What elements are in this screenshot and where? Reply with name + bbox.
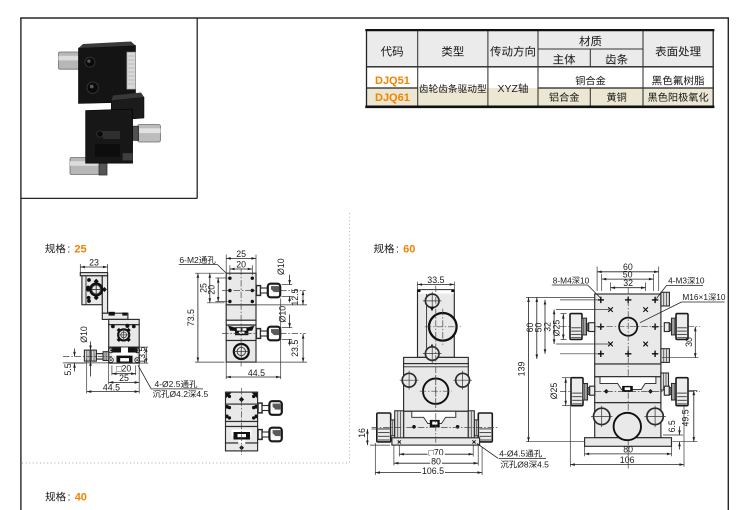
svg-text:33.5: 33.5 (427, 275, 444, 285)
svg-text:30: 30 (684, 337, 694, 347)
svg-text:DJQ51: DJQ51 (375, 75, 410, 87)
svg-text:44.5: 44.5 (248, 368, 265, 378)
svg-text:80: 80 (623, 445, 633, 455)
svg-text:10: 10 (695, 276, 705, 286)
svg-text:4-M3: 4-M3 (668, 276, 687, 286)
svg-text:6.5: 6.5 (667, 420, 677, 432)
svg-text:20: 20 (207, 285, 217, 295)
svg-text:M16×1: M16×1 (682, 292, 708, 302)
svg-text:16: 16 (357, 428, 367, 438)
svg-text:44.5: 44.5 (103, 383, 120, 393)
svg-text::: : (68, 492, 71, 504)
svg-text:Ø8: Ø8 (517, 459, 529, 469)
svg-text:5.5: 5.5 (63, 363, 73, 375)
svg-text:13.5: 13.5 (137, 346, 147, 363)
svg-text:4.5: 4.5 (196, 389, 208, 399)
svg-text:20: 20 (236, 259, 246, 269)
svg-text:32: 32 (623, 278, 633, 288)
svg-text:49.5: 49.5 (681, 409, 691, 426)
svg-text:4.5: 4.5 (537, 459, 549, 469)
svg-text:□20: □20 (116, 364, 131, 374)
svg-text:Ø10: Ø10 (79, 326, 89, 343)
svg-text:XYZ: XYZ (498, 83, 519, 95)
svg-text:25: 25 (119, 373, 129, 383)
svg-text:4-Ø4.5: 4-Ø4.5 (499, 449, 525, 459)
svg-text:Ø10: Ø10 (277, 306, 287, 323)
svg-text:40: 40 (75, 492, 87, 504)
svg-text::: : (396, 243, 399, 255)
svg-text:139: 139 (517, 362, 527, 377)
svg-text:8-M4: 8-M4 (553, 275, 572, 285)
svg-text:25: 25 (236, 249, 246, 259)
svg-text:Ø25: Ø25 (549, 383, 559, 400)
svg-text:6-M2: 6-M2 (179, 255, 199, 265)
svg-text:Ø4.2: Ø4.2 (170, 389, 189, 399)
svg-text::: : (67, 243, 70, 255)
svg-text:Ø10: Ø10 (276, 258, 286, 275)
svg-text:23.5: 23.5 (290, 340, 300, 357)
svg-text:25: 25 (74, 243, 86, 255)
svg-text:10: 10 (580, 275, 590, 285)
svg-text:73.5: 73.5 (186, 309, 196, 326)
svg-text:10: 10 (716, 292, 726, 302)
svg-text:4-Ø2.5: 4-Ø2.5 (155, 379, 181, 389)
svg-text:DJQ61: DJQ61 (375, 92, 410, 104)
svg-text:106: 106 (620, 455, 635, 465)
svg-text:60: 60 (403, 243, 415, 255)
svg-text:Ø25: Ø25 (551, 320, 561, 337)
svg-text:106.5: 106.5 (422, 466, 444, 476)
svg-text:12.5: 12.5 (290, 288, 300, 305)
svg-text:23: 23 (89, 257, 99, 267)
